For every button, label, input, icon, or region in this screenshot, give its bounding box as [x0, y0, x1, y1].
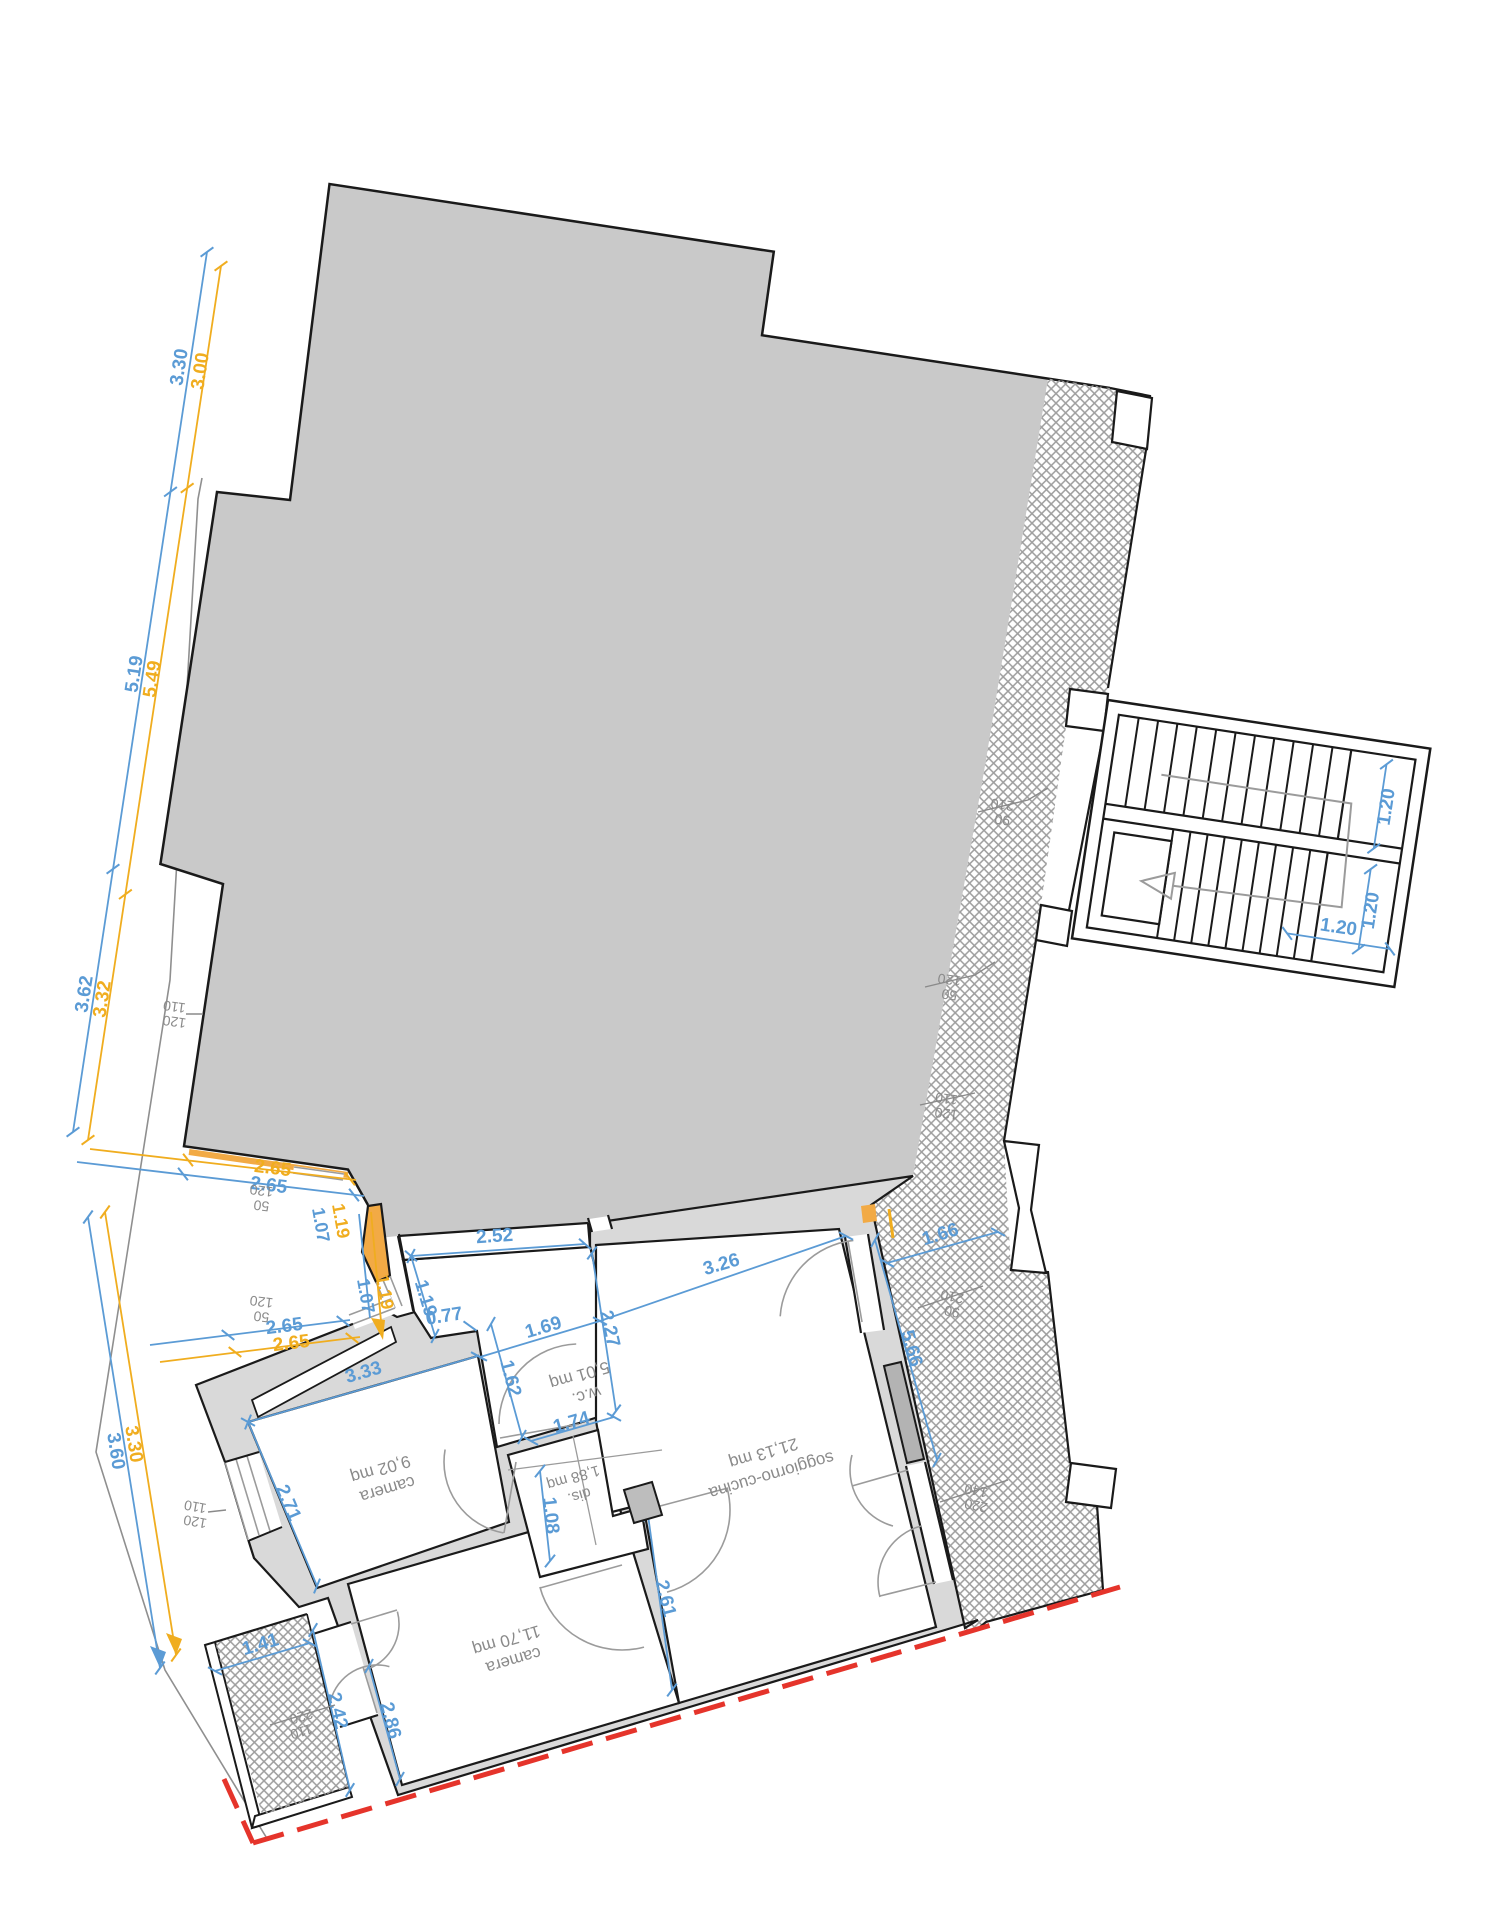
- svg-text:210: 210: [989, 795, 1015, 814]
- svg-text:90: 90: [993, 811, 1011, 829]
- svg-text:120: 120: [161, 1012, 187, 1031]
- svg-text:120: 120: [249, 1182, 274, 1201]
- svg-text:50: 50: [940, 986, 958, 1004]
- svg-text:50: 50: [252, 1308, 270, 1326]
- svg-text:2.52: 2.52: [475, 1225, 513, 1249]
- svg-text:120: 120: [936, 970, 962, 989]
- svg-text:120: 120: [249, 1293, 274, 1312]
- svg-text:50: 50: [252, 1197, 270, 1215]
- svg-text:120: 120: [933, 1104, 959, 1123]
- svg-text:1.08: 1.08: [538, 1496, 563, 1535]
